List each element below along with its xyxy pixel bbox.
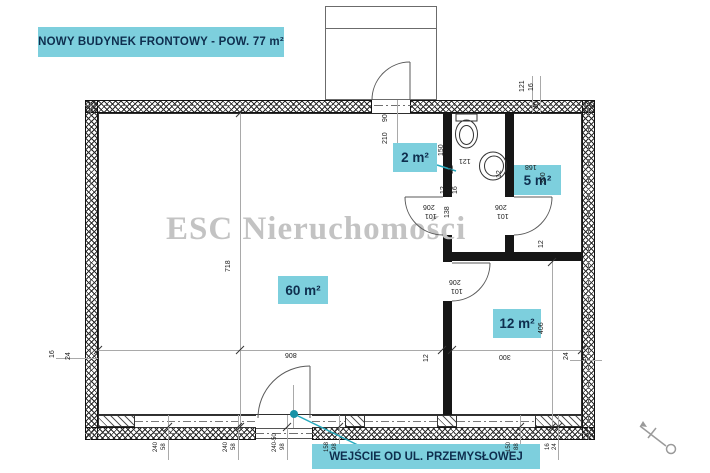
dimension-text: 12	[538, 240, 546, 248]
dimension-ticks	[94, 109, 586, 431]
toilet-icon	[460, 126, 474, 145]
dimension-text: 168	[525, 162, 537, 170]
dimension-text: 206	[423, 202, 435, 210]
room-label-12m2: 12 m²	[493, 309, 541, 338]
dimension-text: 121	[459, 156, 471, 164]
dimension-tick	[94, 346, 102, 354]
north-compass-icon	[640, 421, 676, 454]
plan-vector-layer	[0, 0, 710, 473]
dimension-text: 240	[222, 442, 230, 452]
dimension-text: 101	[451, 286, 463, 294]
dimension-text: 16	[581, 354, 589, 362]
dimension-text: 158	[323, 442, 331, 452]
dimension-text: 58	[160, 443, 168, 450]
dimension-text: 206	[495, 202, 507, 210]
dimension-text: 210	[382, 132, 390, 144]
door-swing-arc	[372, 62, 410, 100]
dimension-text: 206	[449, 277, 461, 285]
floor-plan: ESC Nieruchomości	[0, 0, 710, 473]
dimension-text: 806	[285, 350, 297, 358]
entrance-point-dot	[290, 410, 298, 418]
dimension-text: 240	[152, 442, 160, 452]
dimension-text: 240-50	[271, 433, 279, 452]
dimension-text: D2	[448, 165, 456, 174]
dimension-tick	[164, 423, 172, 431]
dimension-tick	[548, 258, 556, 266]
dimension-text: 101	[497, 211, 509, 219]
dimension-text: 718	[225, 260, 233, 272]
dimension-text: 16	[452, 186, 460, 194]
toilet-icon	[456, 120, 478, 148]
dimension-text: 24	[563, 352, 571, 360]
dimension-tick	[438, 346, 446, 354]
dimension-tick	[335, 423, 343, 431]
door-swing-arc	[514, 197, 552, 235]
room-label-60m2: 60 m²	[278, 276, 328, 304]
dimension-text: 406	[538, 322, 546, 334]
dimension-tick	[448, 346, 456, 354]
title-badge: NOWY BUDYNEK FRONTOWY - POW. 77 m²	[38, 27, 284, 57]
dimension-text: 88	[513, 443, 521, 450]
dimension-text: 12	[496, 170, 504, 178]
dimension-text: 16	[528, 83, 536, 91]
dimension-tick	[578, 346, 586, 354]
dimension-text: 150	[438, 144, 446, 156]
dimension-text: 300	[540, 172, 548, 184]
dimension-text: 300	[499, 352, 511, 360]
room-label-2m2: 2 m²	[393, 143, 437, 172]
dimension-text: 12	[423, 354, 431, 362]
dimension-text: 150	[505, 442, 513, 452]
dimension-text: 138	[444, 206, 452, 218]
room-label-5m2: 5 m²	[514, 165, 561, 195]
dimension-text: 24	[65, 352, 73, 360]
door-swing-arc	[258, 366, 310, 418]
door-swings	[258, 62, 552, 418]
dimension-text: 101	[425, 211, 437, 219]
dimension-text: 24	[551, 443, 559, 450]
dimension-text: 16	[49, 350, 57, 358]
dimension-tick	[236, 109, 244, 117]
dimension-tick	[516, 423, 524, 431]
dimension-text: 90	[382, 114, 390, 122]
dimension-text: 40	[533, 101, 541, 109]
dimension-text: 98	[331, 443, 339, 450]
dimension-tick	[283, 423, 291, 431]
dimension-tick	[234, 423, 242, 431]
dimension-text: 98	[279, 443, 287, 450]
dimension-tick	[236, 423, 244, 431]
dimension-text: 121	[519, 80, 527, 92]
dimension-tick	[236, 346, 244, 354]
dimension-text: 58	[230, 443, 238, 450]
